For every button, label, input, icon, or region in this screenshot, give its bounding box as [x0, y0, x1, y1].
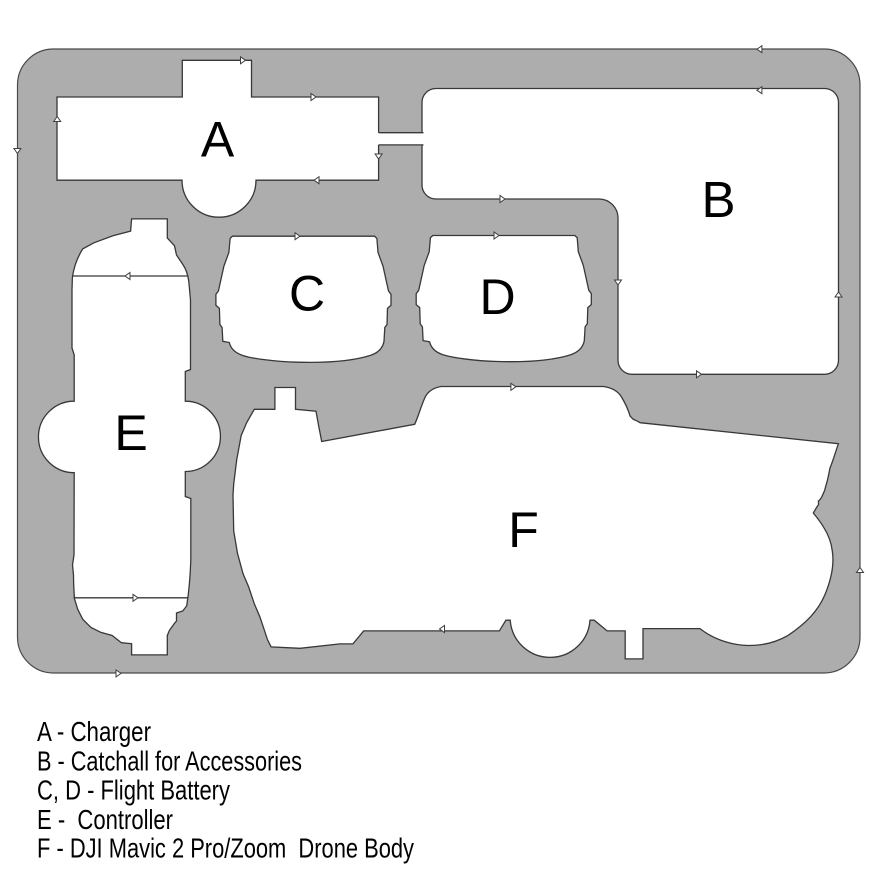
svg-text:F: F [508, 502, 539, 558]
svg-text:A - Charger: A - Charger [37, 716, 151, 747]
svg-text:C, D - Flight Battery: C, D - Flight Battery [37, 775, 230, 806]
svg-text:B - Catchall for Accessories: B - Catchall for Accessories [37, 746, 302, 777]
svg-text:D: D [479, 269, 515, 325]
svg-text:C: C [289, 266, 325, 322]
svg-text:E - Controller: E - Controller [37, 804, 173, 835]
svg-text:A: A [201, 112, 235, 168]
svg-text:B: B [701, 171, 735, 228]
svg-text:F - DJI Mavic 2 Pro/Zoom Dron: F - DJI Mavic 2 Pro/Zoom Drone Body [37, 833, 414, 864]
svg-text:E: E [114, 405, 147, 461]
